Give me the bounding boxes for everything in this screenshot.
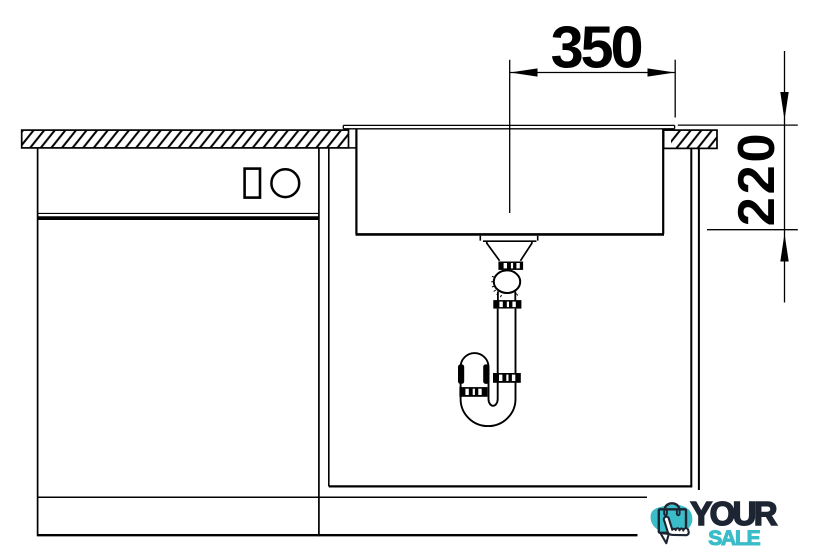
svg-text:SALE: SALE <box>708 527 760 550</box>
svg-text:220: 220 <box>728 131 786 227</box>
svg-text:350: 350 <box>551 14 642 81</box>
